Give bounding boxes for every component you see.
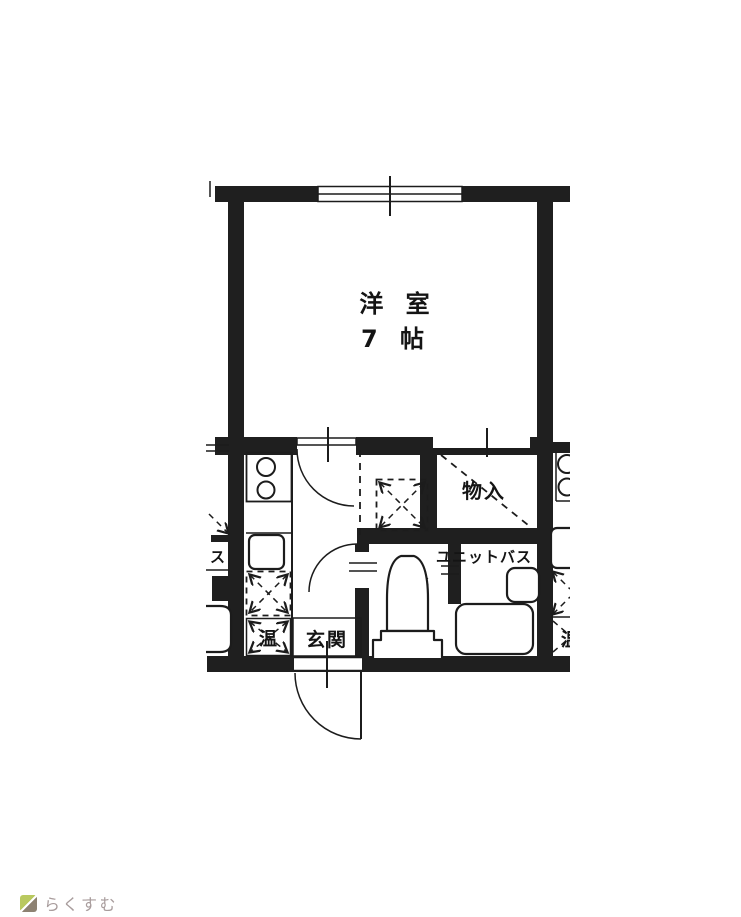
neighbor-right-label: 温	[561, 630, 579, 651]
neighbor-right-cross	[553, 597, 570, 614]
refrigerator-space	[377, 480, 428, 531]
kitchen-sink	[249, 535, 284, 569]
floorplan-drawing: 温 物入 便所 ユニットバス 玄関	[0, 0, 741, 917]
main-room-name: 洋 室	[359, 290, 436, 318]
wall-storage-left	[420, 448, 437, 532]
neighbor-right-wall-stub	[553, 442, 570, 453]
stove-unit	[247, 453, 292, 502]
main-room-door-arc	[297, 449, 354, 506]
neighbor-left-label: ス	[210, 548, 226, 566]
main-door-opening	[297, 437, 356, 455]
unit-bath-label: ユニットバス	[436, 548, 532, 566]
stove-burner	[258, 482, 275, 499]
toilet-base	[373, 631, 442, 658]
neighbor-left-wall-stub	[211, 535, 228, 542]
fridge-cross	[380, 483, 424, 527]
bath-sink	[507, 568, 539, 602]
neighbor-left-cross-fragment	[209, 514, 228, 533]
wall-right	[537, 195, 553, 672]
neighbor-right-sink	[551, 528, 577, 568]
storage-top-opening	[433, 437, 530, 449]
stove-burner	[257, 458, 275, 476]
house-icon	[20, 895, 37, 912]
entrance-area: 玄関	[293, 618, 361, 656]
storage-label: 物入	[462, 479, 506, 503]
watermark-text: らくすむ	[44, 891, 118, 915]
fridge-cross	[380, 483, 424, 527]
wall-toilet-left-upper	[355, 544, 369, 552]
water-heater-label: 温	[259, 629, 277, 650]
neighbor-right-burner	[559, 479, 576, 496]
toilet-room: 便所	[373, 556, 442, 658]
kitchen: 温	[246, 452, 292, 657]
storage-closet: 物入	[441, 455, 528, 525]
neighbor-right: 温	[551, 442, 579, 652]
neighbor-left-bathtub	[206, 606, 231, 652]
neighbor-left-wall-block	[212, 576, 228, 601]
neighbor-left: ス	[206, 445, 231, 652]
entrance-label: 玄関	[306, 628, 348, 651]
toilet-door-arc	[309, 544, 357, 592]
watermark: らくすむ	[20, 891, 118, 915]
toilet-bowl	[387, 556, 428, 631]
main-room: 洋 室 7 帖	[359, 290, 436, 353]
neighbor-right-cross	[553, 572, 570, 589]
bathtub	[456, 604, 533, 654]
wall-bottom	[207, 656, 570, 672]
neighbor-right-burner	[558, 455, 576, 473]
wall-toilet-bath-divider	[448, 532, 461, 604]
main-room-size: 7 帖	[361, 325, 431, 353]
wall-left	[228, 195, 244, 672]
floorplan-page: 温 物入 便所 ユニットバス 玄関	[0, 0, 741, 917]
wall-toilet-left-lower	[355, 588, 369, 658]
